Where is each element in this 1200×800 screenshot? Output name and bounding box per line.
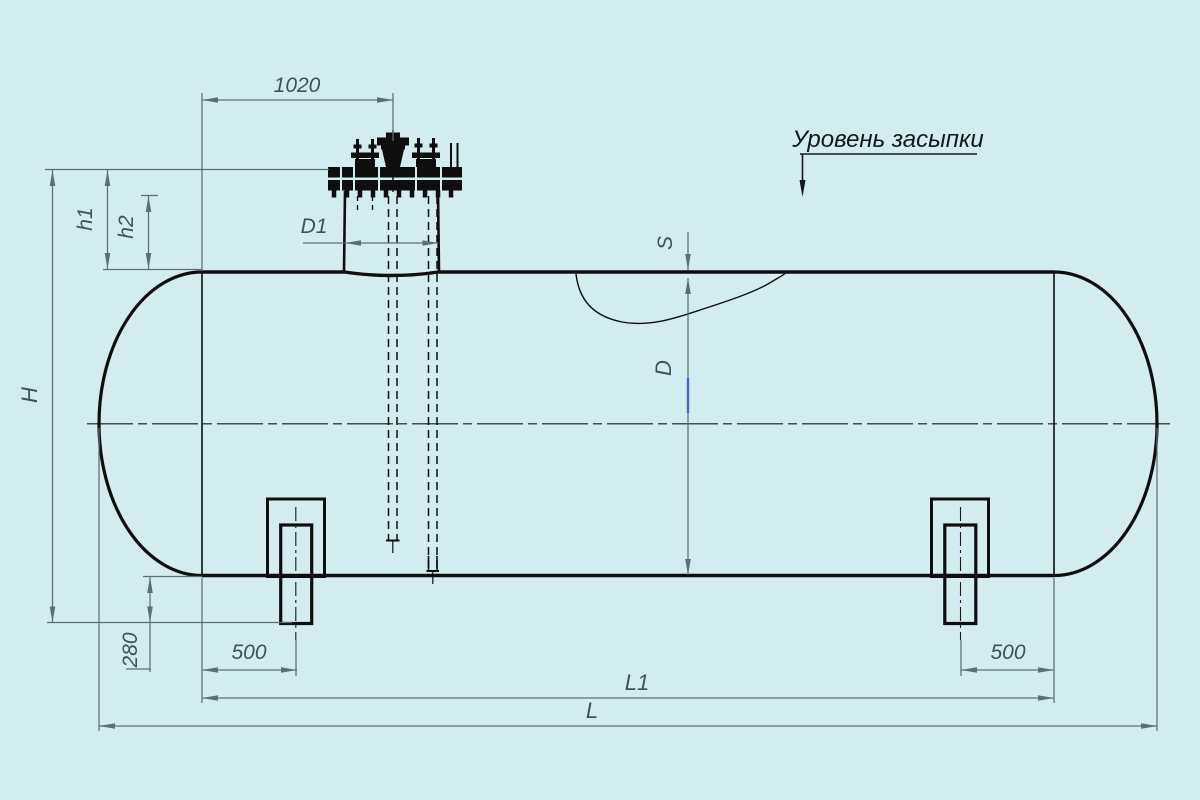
arrowhead-right [1038,695,1054,701]
neck-right-wall [438,191,439,272]
drawing-canvas: 1020 h1 h2 H D1 S D [0,0,1200,800]
dim-label-h2: h2 [115,215,138,239]
stud-nut [415,144,423,148]
arrowhead-up [105,170,111,186]
arrowhead-right [281,667,297,673]
dim-L: L [99,698,1157,729]
bolt-stub [410,191,415,198]
dim-500-right: 500 [961,641,1054,673]
arrowhead-left [99,723,115,729]
arrowhead-left [202,667,218,673]
bolt-stub [358,191,363,198]
dim-label-L1: L1 [625,670,649,695]
shell-top-line [202,272,1054,276]
bolt-stub [384,191,389,198]
nozzle-body [355,159,375,167]
tank-technical-drawing: 1020 h1 h2 H D1 S D [0,0,1200,800]
dim-label-500-right: 500 [990,641,1025,664]
dim-1020: 1020 [202,74,393,103]
dim-label-H: H [17,387,42,403]
bolt-stub [423,191,428,198]
left-nozzle [351,139,379,167]
dim-label-h1: h1 [74,207,97,230]
dim-500-left: 500 [202,641,297,673]
edge-studs [451,143,458,167]
arrowhead-left [202,97,218,103]
arrowhead-right [1141,723,1157,729]
nozzle-flange [412,153,440,159]
arrowhead-down [105,253,111,269]
dim-S: S [654,236,691,294]
backfill-level-note: Уровень засыпки [791,126,983,197]
backfill-level-text: Уровень засыпки [791,126,983,153]
bolt-stub [332,191,337,198]
extension-lines [45,93,1157,731]
dim-D1: D1 [301,215,439,246]
stud-nut [369,145,377,149]
dim-L1: L1 [202,670,1054,701]
arrowhead-down [147,607,153,623]
neck-left-wall [344,191,345,272]
dim-label-280: 280 [119,632,142,668]
flange-assembly [328,130,462,198]
arrowhead-down [685,559,691,575]
dim-280: 280 [119,577,153,672]
stud-nut [354,145,362,149]
dim-label-D: D [651,360,676,376]
bolt-stub [449,191,454,198]
dim-h1: h1 [74,170,110,269]
dim-label-500-left: 500 [231,641,266,664]
breakout-section-curve [576,273,786,323]
dim-label-1020: 1020 [274,74,321,97]
arrowhead-up [146,196,152,212]
nozzle-body [416,159,436,167]
right-nozzle [412,138,440,167]
bolt-stub [345,191,350,198]
stud-nut [430,144,438,148]
flange-hidden-stubs [358,196,373,212]
internal-pipe-left [386,196,400,553]
arrowhead-up [50,170,56,186]
arrowhead-left [961,667,977,673]
nozzle-flange [351,153,379,159]
dim-H: H [17,170,55,623]
dim-label-L: L [586,698,598,723]
arrowhead-right [423,240,439,246]
arrowhead-up [147,577,153,593]
arrowhead-left [345,240,361,246]
arrowhead-right [1038,667,1054,673]
note-arrowhead-down [800,180,806,197]
support-leg-right [932,499,989,640]
dim-h2: h2 [115,196,151,269]
dim-label-S: S [654,236,677,250]
arrowhead-down [685,254,691,270]
manhole-neck [344,191,439,272]
support-leg-left [268,499,325,640]
arrowhead-down [50,607,56,623]
dim-label-D1: D1 [301,215,328,238]
arrowhead-down [146,253,152,269]
internal-pipe-right [427,196,440,584]
arrowhead-left [202,695,218,701]
arrowhead-right [377,97,393,103]
